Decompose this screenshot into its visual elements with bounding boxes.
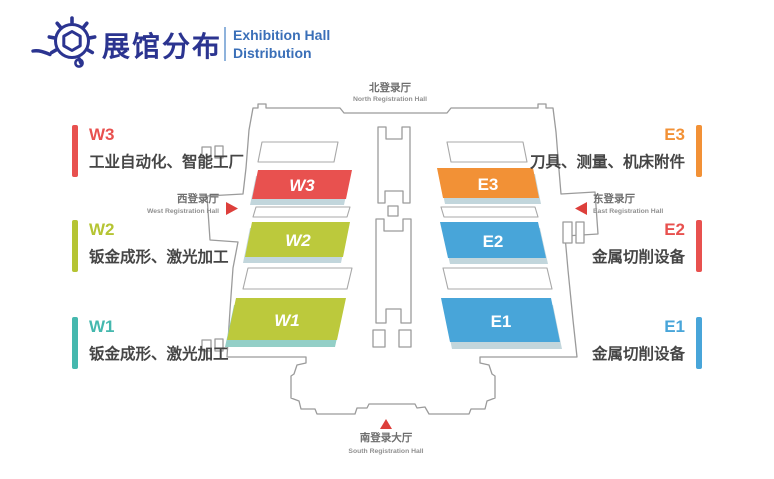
west-hall-label-en: West Registration Hall: [147, 208, 219, 215]
white-hall-west-top: [258, 142, 338, 162]
legend-w2: W2 钣金成形、激光加工: [72, 220, 229, 272]
white-strip-e2-e1: [443, 268, 552, 289]
page-title: 展馆分布: [102, 25, 222, 65]
legend-e3-bar: [696, 125, 702, 177]
legend-e1-desc: 金属切削设备: [592, 342, 685, 364]
legend-w1-desc: 钣金成形、激光加工: [89, 342, 229, 364]
hall-e3-code: E3: [478, 175, 499, 194]
gear-hexagon-icon: [30, 12, 102, 74]
corridor-foot-right: [399, 330, 411, 347]
legend-w2-code: W2: [89, 220, 229, 239]
south-hall-label-en: South Registration Hall: [348, 448, 423, 455]
white-strip-w3-w2: [253, 207, 350, 217]
legend-e2-bar: [696, 220, 702, 272]
hall-w1-code: W1: [274, 311, 300, 330]
legend-w1-code: W1: [89, 317, 229, 336]
north-hall-label-zh: 北登录厅: [369, 81, 411, 94]
annex-east-2: [576, 222, 584, 243]
legend-w2-desc: 钣金成形、激光加工: [89, 245, 229, 267]
hall-w3-code: W3: [289, 176, 315, 195]
legend-w3: W3 工业自动化、智能工厂: [72, 125, 244, 177]
page-subtitle-line2: Distribution: [233, 44, 330, 62]
south-entrance-arrow-icon: [380, 419, 392, 429]
east-hall-label-zh: 东登录厅: [593, 192, 635, 205]
north-hall-label-en: North Registration Hall: [353, 96, 427, 103]
legend-e3: E3 刀具、测量、机床附件: [530, 125, 702, 177]
page-subtitle-line1: Exhibition Hall: [233, 26, 330, 44]
corridor-foot-left: [373, 330, 385, 347]
legend-w2-bar: [72, 220, 78, 272]
east-hall-label-en: East Registration Hall: [593, 208, 663, 215]
page-subtitle: Exhibition Hall Distribution: [233, 26, 330, 62]
legend-w3-desc: 工业自动化、智能工厂: [89, 150, 244, 172]
white-strip-e3-e2: [441, 207, 538, 217]
corridor-upper: [378, 127, 410, 203]
hall-e1-code: E1: [491, 312, 512, 331]
legend-e1-code: E1: [592, 317, 685, 336]
legend-w1-bar: [72, 317, 78, 369]
legend-e1: E1 金属切削设备: [592, 317, 702, 369]
corridor-square: [388, 206, 398, 216]
legend-w3-bar: [72, 125, 78, 177]
hall-w2-code: W2: [285, 231, 311, 250]
west-hall-label-zh: 西登录厅: [177, 192, 219, 205]
annex-east-1: [563, 222, 572, 243]
legend-e2-desc: 金属切削设备: [592, 245, 685, 267]
corridor-lower: [376, 219, 411, 323]
white-hall-east-top: [447, 142, 527, 162]
legend-e1-bar: [696, 317, 702, 369]
legend-w3-code: W3: [89, 125, 244, 144]
hall-e2-code: E2: [483, 232, 504, 251]
legend-e3-code: E3: [530, 125, 685, 144]
south-hall-label-zh: 南登录大厅: [360, 431, 413, 444]
legend-e2-code: E2: [592, 220, 685, 239]
white-strip-w2-w1: [243, 268, 352, 289]
page-header: 展馆分布 Exhibition Hall Distribution: [0, 0, 774, 80]
title-divider: [224, 27, 226, 61]
legend-e3-desc: 刀具、测量、机床附件: [530, 150, 685, 172]
legend-e2: E2 金属切削设备: [592, 220, 702, 272]
legend-w1: W1 钣金成形、激光加工: [72, 317, 229, 369]
